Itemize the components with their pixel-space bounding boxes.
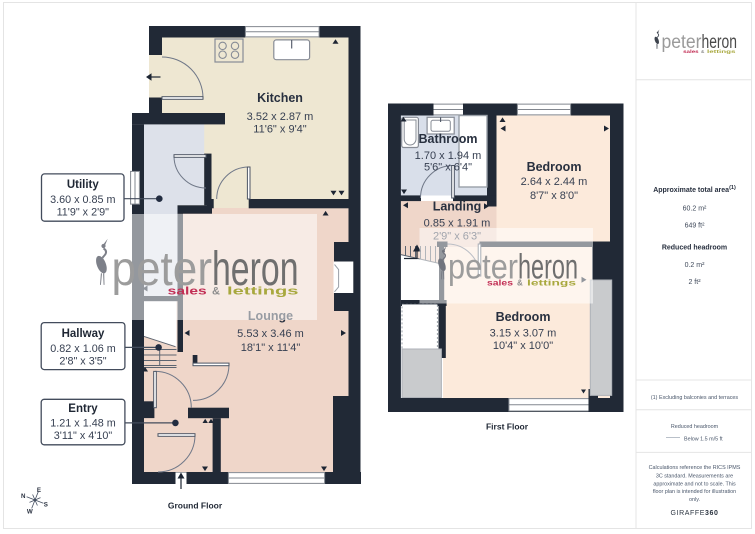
- svg-text:3'11" x 4'10": 3'11" x 4'10": [54, 430, 113, 442]
- svg-text:lettings: lettings: [527, 279, 577, 288]
- svg-text:only.: only.: [689, 497, 700, 503]
- svg-text:3.60 x 0.85 m: 3.60 x 0.85 m: [50, 194, 115, 206]
- svg-text:1.70 x 1.94 m: 1.70 x 1.94 m: [415, 150, 482, 162]
- svg-text:0.2 m²: 0.2 m²: [685, 262, 706, 269]
- svg-text:sales: sales: [683, 49, 699, 54]
- svg-text:2'8" x 3'5": 2'8" x 3'5": [59, 356, 106, 368]
- svg-text:&: &: [517, 279, 523, 288]
- svg-text:S: S: [44, 502, 48, 509]
- svg-text:2.64 x 2.44 m: 2.64 x 2.44 m: [521, 176, 588, 188]
- svg-text:Landing: Landing: [433, 200, 482, 214]
- svg-text:E: E: [37, 487, 41, 494]
- svg-text:11'6" x 9'4": 11'6" x 9'4": [253, 123, 306, 135]
- svg-text:11'9" x 2'9": 11'9" x 2'9": [57, 207, 110, 219]
- svg-text:N: N: [21, 493, 26, 500]
- svg-text:5'6" x 6'4": 5'6" x 6'4": [424, 162, 472, 174]
- svg-text:sales: sales: [487, 279, 514, 288]
- svg-text:2 ft²: 2 ft²: [688, 279, 701, 286]
- svg-text:Bathroom: Bathroom: [418, 132, 477, 146]
- svg-text:10'4" x 10'0": 10'4" x 10'0": [493, 340, 553, 352]
- svg-text:Entry: Entry: [68, 403, 98, 415]
- svg-text:18'1" x 11'4": 18'1" x 11'4": [241, 342, 301, 354]
- svg-text:GIRAFFE360: GIRAFFE360: [670, 510, 718, 517]
- svg-text:0.82 x 1.06 m: 0.82 x 1.06 m: [50, 343, 115, 355]
- svg-text:&: &: [212, 285, 220, 297]
- svg-text:1.21 x 1.48 m: 1.21 x 1.48 m: [50, 418, 115, 430]
- svg-text:sales: sales: [168, 285, 207, 297]
- svg-text:lettings: lettings: [227, 285, 299, 297]
- svg-text:5.53 x 3.46 m: 5.53 x 3.46 m: [237, 328, 304, 340]
- svg-text:Ground Floor: Ground Floor: [168, 501, 223, 511]
- svg-text:Calculations reference the RIC: Calculations reference the RICS IPMS: [649, 465, 741, 471]
- svg-text:3.52 x 2.87 m: 3.52 x 2.87 m: [247, 111, 314, 123]
- svg-text:approximate and not to scale.: approximate and not to scale. This: [653, 482, 736, 488]
- svg-text:Approximate total area(1): Approximate total area(1): [653, 185, 736, 194]
- svg-text:3.15 x 3.07 m: 3.15 x 3.07 m: [490, 328, 557, 340]
- svg-text:Bedroom: Bedroom: [496, 310, 551, 324]
- svg-text:floor plan is intended for ill: floor plan is intended for illustration: [653, 489, 736, 495]
- svg-text:Reduced headroom: Reduced headroom: [662, 245, 727, 252]
- svg-text:lettings: lettings: [707, 49, 736, 54]
- svg-text:0.85 x 1.91 m: 0.85 x 1.91 m: [424, 218, 491, 230]
- svg-text:Bedroom: Bedroom: [527, 160, 582, 174]
- svg-text:Utility: Utility: [67, 179, 100, 191]
- svg-text:Reduced headroom: Reduced headroom: [671, 424, 719, 430]
- svg-text:(1) Excluding balconies and te: (1) Excluding balconies and terraces: [651, 395, 738, 401]
- svg-text:Below 1.5 m/5 ft: Below 1.5 m/5 ft: [684, 436, 723, 442]
- svg-text:649 ft²: 649 ft²: [685, 223, 706, 230]
- svg-text:3C standard. Measurements are: 3C standard. Measurements are: [656, 474, 733, 480]
- svg-text:60.2 m²: 60.2 m²: [683, 206, 707, 213]
- svg-text:8'7" x 8'0": 8'7" x 8'0": [530, 190, 578, 202]
- svg-text:Hallway: Hallway: [62, 328, 105, 340]
- svg-text:W: W: [27, 508, 33, 515]
- svg-text:Kitchen: Kitchen: [257, 91, 303, 105]
- svg-text:First Floor: First Floor: [486, 422, 529, 432]
